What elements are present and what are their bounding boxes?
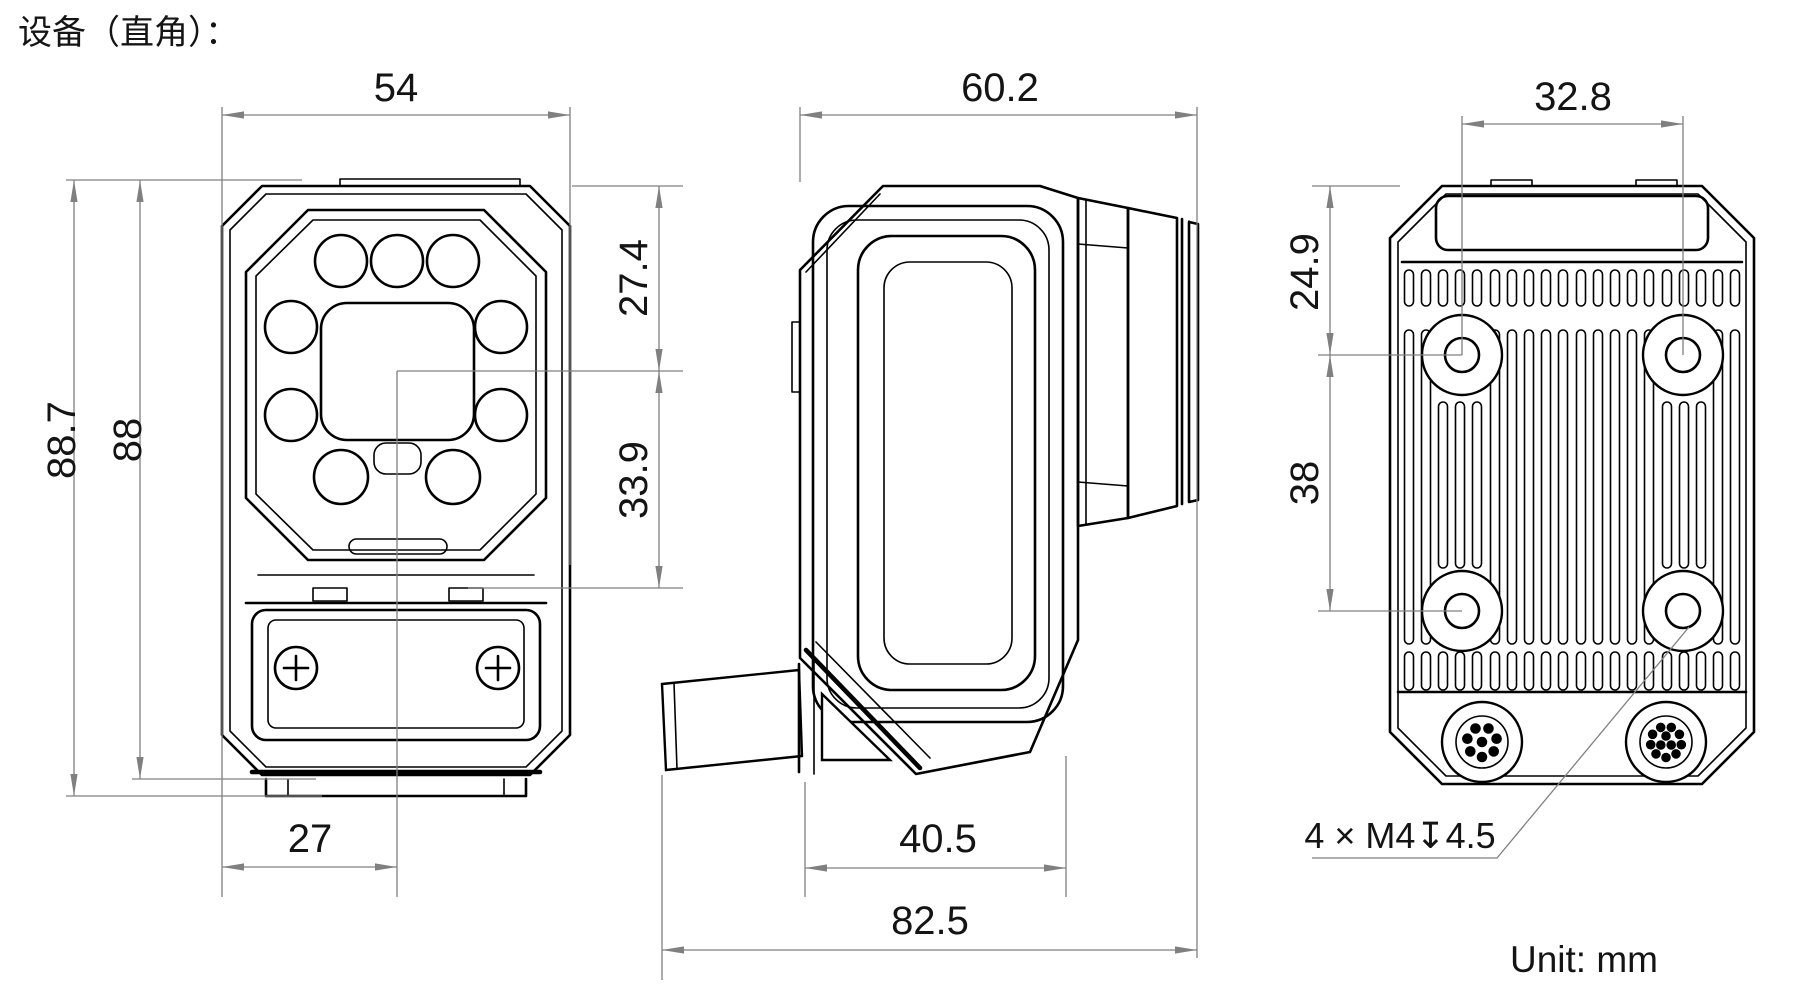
dim-side-bottom: 40.5 [899,817,977,861]
led-circle [427,235,479,287]
cable-connector-tube [662,662,814,774]
back-top-band [1436,196,1708,250]
technical-drawing-page: 设备（直角）： [0,0,1811,1007]
front-slot [349,539,447,554]
phillips-screw [275,647,317,689]
front-view [222,179,570,796]
back-view [1390,180,1754,784]
dimension-drawing: 设备（直角）： [0,0,1811,1007]
unit-label: Unit: mm [1510,939,1658,980]
latch-tab [449,588,483,601]
dim-back-top-hole-offset: 24.9 [1283,233,1327,311]
dim-side-depth: 60.2 [961,66,1039,110]
led-circle [475,389,527,441]
phillips-screw [477,647,519,689]
page-title: 设备（直角）： [18,13,239,53]
front-illuminator-face [246,210,546,560]
dim-back-hole-spacing-v: 38 [1283,461,1327,506]
dim-lens-from-top: 27.4 [612,239,656,317]
dim-side-overall: 82.5 [891,899,969,943]
led-circle [426,450,480,504]
dim-lens-to-latch: 33.9 [612,441,656,519]
led-circle [371,235,423,287]
latch-tab [313,588,347,601]
dim-back-hole-spacing-h: 32.8 [1534,75,1612,119]
mount-hole-note: 4 × M4↧4.5 [1304,815,1495,856]
led-circle [315,235,367,287]
dim-front-height-body: 88 [106,418,150,463]
dim-front-width: 54 [374,66,419,110]
ethernet-connector [1626,702,1706,782]
dim-front-height-overall: 88.7 [40,401,84,479]
lens-barrel [1078,198,1198,526]
led-circle [475,301,527,353]
led-circle [265,301,317,353]
side-view [662,186,1198,774]
led-circle [265,389,317,441]
power-io-connector [1442,702,1522,782]
dim-front-center-offset: 27 [288,817,333,861]
led-circle [314,450,368,504]
mounting-hole [1422,315,1723,651]
